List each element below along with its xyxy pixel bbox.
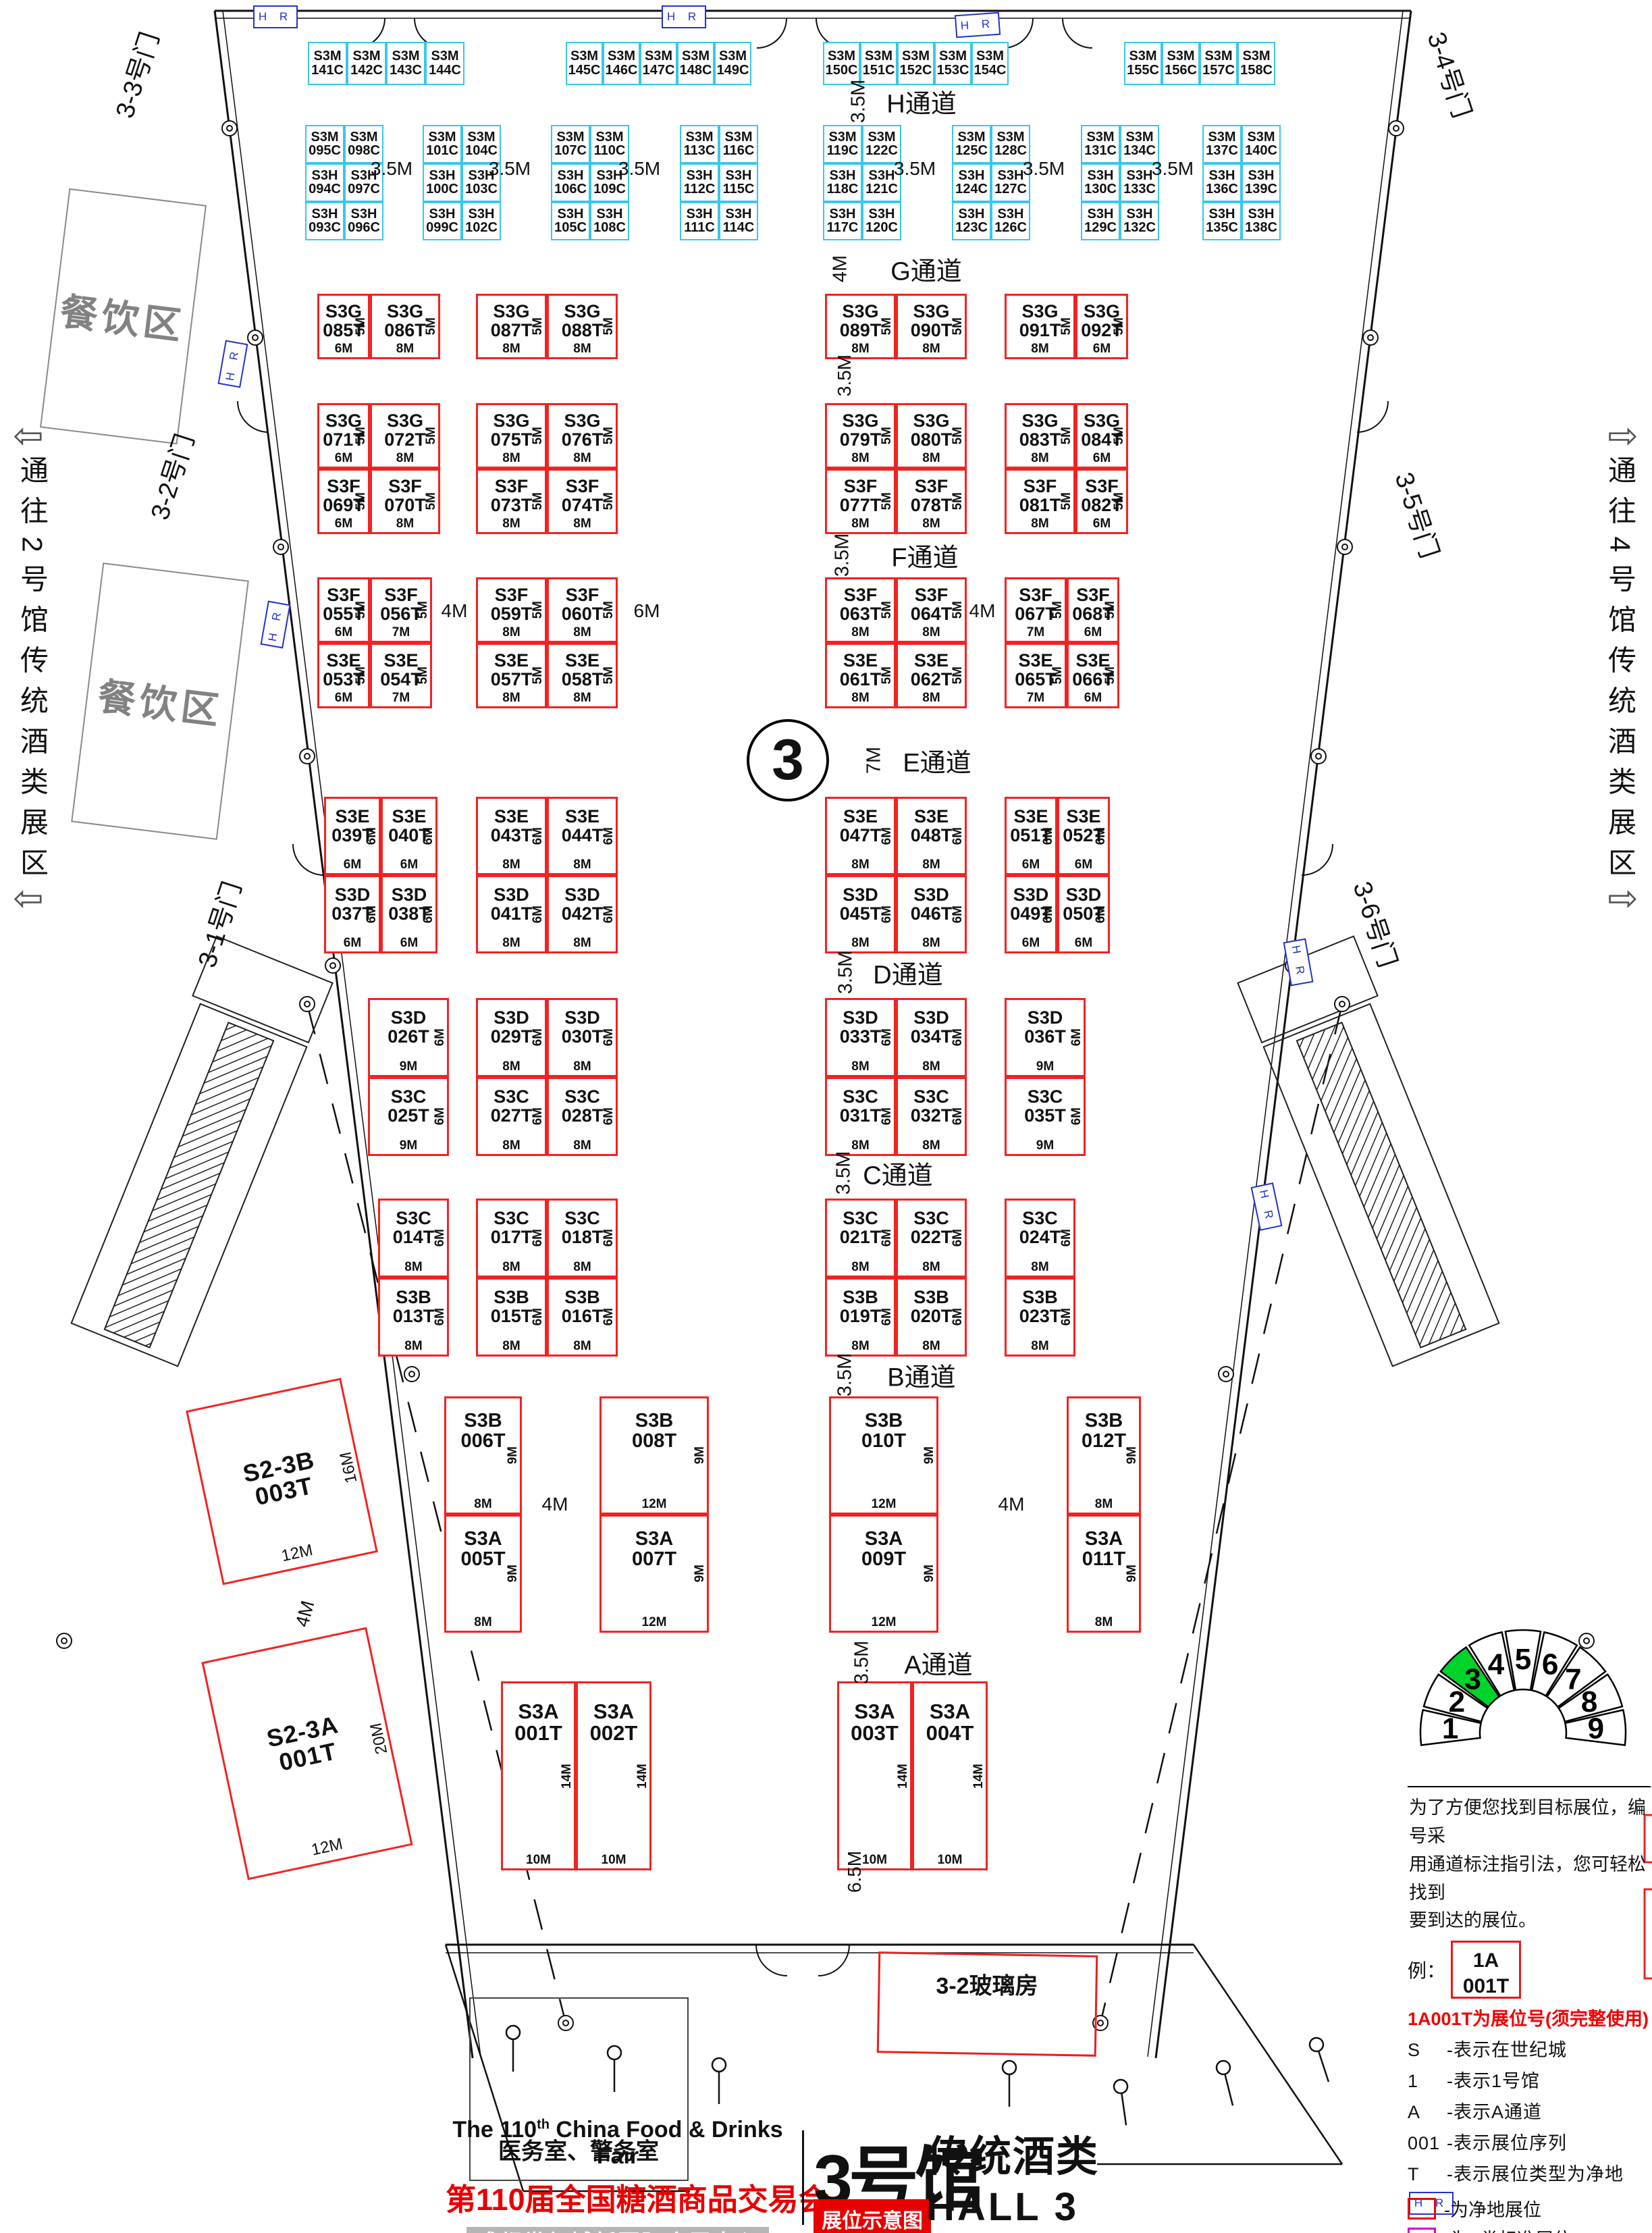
booth-S3C-022T: S3C022T6M8M	[896, 1199, 967, 1278]
booth-S3H-108C: S3H108C	[590, 202, 629, 240]
booth-bottom-dim: 8M	[478, 342, 545, 357]
booth-bottom-dim: 7M	[1007, 625, 1065, 640]
booth-S3E-052T: S3E052T6M6M	[1057, 797, 1110, 875]
booth-S3B-008T: S3B008T9M12M	[599, 1396, 709, 1515]
booth-id: S3M145C	[567, 49, 602, 78]
fair-title-cn: 第110届全国糖酒商品交易会	[446, 2175, 790, 2219]
booth-id: S3M153C	[936, 49, 970, 78]
booth-S3M-142C: S3M142C	[347, 42, 386, 85]
booth-S3M-155C: S3M155C	[1124, 42, 1162, 85]
booth-bottom-dim: 8M	[827, 517, 894, 531]
booth-id: S3H096C	[346, 207, 382, 236]
booth-S3G-087T: S3G087T5M8M	[476, 294, 547, 359]
aisle-width-F通道: 3.5M	[832, 533, 854, 577]
booth-id: S3M154C	[973, 49, 1007, 78]
booth-S3H-094C: S3H094C	[305, 163, 344, 202]
booth-S3B-019T: S3B019T6M8M	[825, 1278, 896, 1357]
booth-id: S3B010T	[831, 1411, 936, 1451]
booth-S3D-026T: S3D026T6M9M	[368, 998, 449, 1077]
booth-bottom-dim: 8M	[898, 342, 965, 357]
right-stair-corridor	[1237, 937, 1508, 1367]
corridor-label-10: 通往2号馆传统酒类展区	[12, 455, 53, 888]
booth-S3D-034T: S3D034T6M8M	[896, 998, 967, 1077]
booth-id: S3H130C	[1082, 169, 1119, 197]
booth-S3G-090T: S3G090T5M8M	[896, 294, 967, 359]
legend-code-A: A-表示A通道	[1408, 2097, 1651, 2124]
booth-S3H-106C: S3H106C	[551, 163, 590, 202]
aisle-width-E通道: 7M	[863, 747, 886, 774]
booth-bottom-dim: 8M	[372, 342, 438, 357]
booth-S3H-132C: S3H132C	[1120, 202, 1159, 240]
booth-S3F-074T: S3F074T5M8M	[547, 469, 618, 534]
booth-S3M-107C: S3M107C	[551, 125, 590, 163]
booth-S3H-118C: S3H118C	[823, 163, 862, 202]
booth-bottom-dim: 8M	[549, 858, 616, 872]
title-divider	[802, 2130, 804, 2225]
booth-bottom-dim: 6M	[1069, 691, 1117, 706]
booth-S3A-003T: S3A003T14M10M	[837, 1681, 912, 1870]
booth-S3E-040T: S3E040T6M6M	[381, 797, 437, 875]
booth-bottom-dim: 8M	[380, 1260, 447, 1275]
booth-S3C-021T: S3C021T6M8M	[825, 1199, 896, 1278]
booth-S3H-099C: S3H099C	[423, 202, 462, 240]
booth-id: S3H102C	[463, 207, 500, 236]
fan-hall-number-7: 7	[1565, 1663, 1581, 1696]
booth-bottom-dim: 8M	[549, 1059, 616, 1074]
aisle-label-B通道: B通道	[887, 1357, 955, 1394]
booth-id: S3M131C	[1082, 130, 1119, 159]
booth-bottom-dim: 8M	[478, 936, 545, 951]
booth-S3G-083T: S3G083T5M8M	[1005, 403, 1075, 469]
booth-id: S3M158C	[1239, 49, 1274, 78]
booth-S3A-001T: S3A001T14M10M	[501, 1681, 576, 1870]
hall-number-circle: 3	[747, 719, 829, 802]
booth-S3E-039T: S3E039T6M6M	[324, 797, 381, 875]
booth-S3M-146C: S3M146C	[603, 42, 640, 85]
booth-S3M-152C: S3M152C	[897, 42, 934, 85]
booth-bottom-dim: 8M	[898, 517, 965, 531]
booth-S3D-037T: S3D037T6M6M	[324, 875, 381, 953]
legend-code-T: T-表示展位类型为净地	[1408, 2159, 1651, 2186]
fair-title-en: The 110th China Food & Drinks Fair	[446, 2117, 790, 2170]
booth-bottom-dim: 8M	[478, 625, 545, 640]
booth-S3H-112C: S3H112C	[680, 163, 719, 202]
booth-id: S3H112C	[681, 169, 718, 197]
booth-bottom-dim: 8M	[446, 1497, 520, 1512]
booth-S3G-072T: S3G072T5M8M	[370, 403, 440, 469]
corridor-label-11: 通往4号馆传统酒类展区	[1600, 455, 1641, 888]
booth-id: S3M107C	[552, 130, 589, 159]
aisle-label-E通道: E通道	[903, 742, 971, 779]
booth-bottom-dim: 8M	[1007, 1339, 1073, 1354]
booth-side-dim: 14M	[635, 1683, 650, 1868]
booth-id: S3H138C	[1243, 207, 1279, 236]
booth-bottom-dim: 8M	[898, 858, 965, 872]
booth-id: S3M098C	[346, 130, 382, 159]
booth-side-dim: 9M	[922, 1517, 937, 1631]
booth-S3G-079T: S3G079T5M8M	[825, 403, 896, 469]
hall-type-cn: 传统酒类	[926, 2122, 1099, 2183]
fire-hydrant-hr-box-1: H R	[662, 5, 706, 28]
booth-S3C-028T: S3C028T6M8M	[547, 1077, 618, 1156]
booth-S3E-066T: S3E066T5M6M	[1067, 643, 1119, 708]
booth-bottom-dim: 12M	[831, 1497, 936, 1512]
booth-id: S3H117C	[824, 207, 861, 236]
booth-S3M-141C: S3M141C	[308, 42, 347, 85]
booth-side-dim: 9M	[693, 1398, 708, 1513]
booth-id: S3M151C	[861, 49, 896, 78]
venue-name: 成都世纪城新国际会展中心	[467, 2227, 769, 2233]
fair-titles: The 110th China Food & Drinks Fair 第110届…	[446, 2117, 790, 2233]
booth-id: S3B008T	[602, 1411, 707, 1451]
booth-id: S3M152C	[899, 49, 933, 78]
booth-S3E-047T: S3E047T6M8M	[825, 797, 896, 875]
booth-S3B-020T: S3B020T6M8M	[896, 1278, 967, 1357]
booth-bottom-dim: 9M	[1007, 1138, 1084, 1153]
booth-side-dim: 9M	[693, 1517, 708, 1631]
booth-S3F-064T: S3F064T5M8M	[896, 577, 967, 643]
booth-side-dim: 14M	[896, 1683, 911, 1868]
arrow-label-12: ⇦	[13, 415, 43, 457]
booth-side-dim: 14M	[971, 1683, 986, 1868]
booth-id: S3M150C	[824, 49, 859, 78]
booth-bottom-dim: 9M	[1007, 1059, 1084, 1074]
booth-S3D-030T: S3D030T6M8M	[547, 998, 618, 1077]
booth-id: S3H111C	[681, 207, 718, 236]
aisle-width-D通道: 3.5M	[835, 951, 857, 994]
booth-S3M-154C: S3M154C	[971, 42, 1009, 85]
booth-bottom-dim: 8M	[898, 691, 965, 706]
booth-side-dim: 9M	[506, 1517, 521, 1631]
legend-code-lines: S-表示在世纪城1-表示1号馆A-表示A通道001-表示展位序列T-表示展位类型…	[1408, 2035, 1651, 2186]
booth-S3M-131C: S3M131C	[1081, 125, 1120, 163]
booth-S3B-015T: S3B015T6M8M	[476, 1278, 547, 1357]
booth-S3H-100C: S3H100C	[423, 163, 462, 202]
booth-id: S3M113C	[681, 130, 718, 159]
booth-S3M-145C: S3M145C	[566, 42, 603, 85]
booth-S3B-012T: S3B012T9M8M	[1067, 1396, 1141, 1515]
legend-swatch-color	[1408, 2198, 1436, 2219]
booth-bottom-dim: 6M	[1077, 451, 1126, 466]
legend-example-note: 1A001T为展位号(须完整使用)	[1408, 2004, 1651, 2030]
dim-label-4M-10: 4M	[542, 1494, 568, 1515]
booth-bottom-dim: 8M	[549, 1260, 616, 1275]
booth-id: S3A009T	[831, 1529, 936, 1569]
booth-S3M-137C: S3M137C	[1202, 125, 1242, 163]
booth-id: S3H108C	[591, 207, 628, 236]
booth-S3A-004T: S3A004T14M10M	[912, 1681, 988, 1870]
booth-bottom-dim: 8M	[1069, 1615, 1139, 1630]
room-label-9: 3-2玻璃房	[936, 1968, 1038, 2001]
booth-S3E-044T: S3E044T6M8M	[547, 797, 618, 875]
booth-S3M-156C: S3M156C	[1162, 42, 1200, 85]
booth-id: S3M146C	[604, 49, 639, 78]
map-tag: 展位示意图	[814, 2199, 931, 2233]
booth-S3H-123C: S3H123C	[952, 202, 991, 240]
fan-hall-number-5: 5	[1515, 1643, 1531, 1676]
booth-id: S3H136C	[1204, 169, 1240, 197]
booth-id: S3H123C	[953, 207, 990, 236]
legend-code-001: 001-表示展位序列	[1408, 2128, 1651, 2155]
booth-bottom-dim: 8M	[827, 691, 894, 706]
booth-id: S3M144C	[427, 49, 463, 78]
booth-bottom-dim: 8M	[478, 517, 545, 531]
booth-bottom-dim: 10M	[578, 1853, 649, 1868]
booth-S3A-005T: S3A005T9M8M	[444, 1515, 522, 1633]
booth-bottom-dim: 8M	[549, 1138, 616, 1153]
booth-bottom-dim: 8M	[827, 936, 894, 951]
booth-id: S3H115C	[720, 169, 757, 197]
booth-S3B-013T: S3B013T6M8M	[378, 1278, 449, 1357]
booth-bottom-dim: 8M	[549, 936, 616, 951]
booth-id: S3M141C	[309, 49, 346, 78]
booth-S3G-089T: S3G089T5M8M	[825, 294, 896, 359]
booth-bottom-dim: 8M	[1007, 342, 1073, 357]
booth-S3B-010T: S3B010T9M12M	[829, 1396, 938, 1515]
booth-S3C-025T: S3C025T6M9M	[368, 1077, 449, 1156]
booth-S3M-153C: S3M153C	[934, 42, 971, 85]
booth-S3H-117C: S3H117C	[823, 202, 862, 240]
booth-bottom-dim: 8M	[898, 936, 965, 951]
booth-S3M-101C: S3M101C	[423, 125, 462, 163]
dim-label-3.5M-5: 3.5M	[1152, 158, 1194, 180]
booth-bottom-dim: 8M	[1007, 451, 1073, 466]
booth-id: S3M104C	[463, 130, 500, 159]
booth-S3H-136C: S3H136C	[1202, 163, 1242, 202]
booth-bottom-dim: 8M	[549, 625, 616, 640]
booth-id: S3M119C	[824, 130, 861, 159]
booth-id: S3H106C	[552, 169, 589, 197]
booth-S3G-080T: S3G080T5M8M	[896, 403, 967, 469]
booth-bottom-dim: 6M	[1059, 936, 1108, 951]
dim-label-4M-11: 4M	[998, 1494, 1025, 1515]
booth-S3A-009T: S3A009T9M12M	[829, 1515, 938, 1633]
booth-bottom-dim: 6M	[319, 691, 368, 706]
booth-bottom-dim: 7M	[1007, 691, 1065, 706]
fan-hall-number-6: 6	[1542, 1648, 1558, 1681]
booth-bottom-dim: 8M	[898, 625, 965, 640]
left-stair-corridor	[62, 937, 333, 1367]
fire-hydrant-hr-box-2: H R	[955, 12, 1001, 38]
booth-S3E-053T: S3E053T5M6M	[317, 643, 370, 708]
booth-bottom-dim: 7M	[372, 625, 430, 640]
booth-S3F-077T: S3F077T5M8M	[825, 469, 896, 534]
booth-id: S3H093C	[307, 207, 343, 236]
dim-label-3.5M-1: 3.5M	[489, 158, 531, 180]
booth-bottom-dim: 12M	[602, 1497, 707, 1512]
booth-id: S3H100C	[424, 169, 460, 197]
booth-S3M-144C: S3M144C	[425, 42, 464, 85]
booth-bottom-dim: 8M	[898, 1059, 965, 1074]
booth-side-dim: 9M	[506, 1398, 521, 1513]
booth-S3C-027T: S3C027T6M8M	[476, 1077, 547, 1156]
booth-id: S3H094C	[307, 169, 343, 197]
booth-S3F-068T: S3F068T5M6M	[1067, 577, 1119, 643]
booth-S3A-002T: S3A002T14M10M	[576, 1681, 651, 1870]
dim-label-3.5M-3: 3.5M	[894, 158, 936, 180]
booth-bottom-dim: 6M	[319, 342, 368, 357]
booth-S3H-138C: S3H138C	[1242, 202, 1281, 240]
hall-overview-fan: 123456789	[1411, 1621, 1641, 1776]
booth-id: S3H124C	[953, 169, 990, 197]
booth-bottom-dim: 6M	[1007, 858, 1055, 872]
booth-bottom-dim: 8M	[478, 858, 545, 872]
booth-bottom-dim: 8M	[1069, 1497, 1139, 1512]
booth-bottom-dim: 8M	[1007, 1260, 1073, 1275]
booth-side-dim: 14M	[560, 1683, 575, 1868]
aisle-width-A通道: 3.5M	[851, 1641, 874, 1684]
booth-S3M-119C: S3M119C	[823, 125, 862, 163]
booth-id: S3M110C	[591, 130, 628, 159]
booth-S3M-158C: S3M158C	[1237, 42, 1275, 85]
dim-label-3.5M-0: 3.5M	[371, 158, 412, 180]
legend-code-S: S-表示在世纪城	[1408, 2035, 1651, 2061]
booth-bottom-dim: 8M	[827, 1339, 894, 1354]
booth-id: S3H118C	[824, 169, 861, 197]
booth-S3H-124C: S3H124C	[952, 163, 991, 202]
booth-S3H-111C: S3H111C	[680, 202, 719, 240]
booth-bottom-dim: 8M	[827, 858, 894, 872]
booth-bottom-dim: 12M	[831, 1615, 936, 1630]
aisle-width-H通道: 3.5M	[848, 80, 870, 123]
booth-S3G-092T: S3G092T5M6M	[1075, 294, 1128, 359]
booth-id: S3M140C	[1243, 130, 1279, 159]
booth-S3D-050T: S3D050T6M6M	[1057, 875, 1110, 953]
hall-name-en: HALL 3	[926, 2184, 1099, 2230]
booth-id: S3M156C	[1163, 49, 1198, 78]
booth-S3E-057T: S3E057T5M8M	[476, 643, 547, 708]
legend-example-booth-box: 1A 001T	[1451, 1941, 1521, 1999]
legend-intro: 为了方便您找到目标展位，编号采用通道标注指引法，您可轻松找到要到达的展位。	[1409, 1794, 1651, 1935]
booth-S3G-075T: S3G075T5M8M	[476, 403, 547, 469]
booth-S3E-061T: S3E061T5M8M	[825, 643, 896, 708]
booth-S3F-070T: S3F070T5M8M	[370, 469, 440, 534]
booth-S3C-014T: S3C014T6M8M	[378, 1199, 449, 1278]
booth-S3H-093C: S3H093C	[305, 202, 344, 240]
booth-bottom-dim: 8M	[372, 451, 438, 466]
booth-bottom-dim: 6M	[319, 517, 368, 531]
booth-S3H-105C: S3H105C	[551, 202, 590, 240]
booth-S3D-041T: S3D041T6M8M	[476, 875, 547, 953]
booth-bottom-dim: 8M	[446, 1615, 520, 1630]
booth-bottom-dim: 8M	[372, 517, 438, 531]
dim-label-4M-9: 4M	[969, 600, 996, 622]
aisle-label-F通道: F通道	[891, 537, 958, 574]
booth-bottom-dim: 8M	[827, 1059, 894, 1074]
booth-S3H-102C: S3H102C	[462, 202, 501, 240]
legend-swatch-color	[1408, 2228, 1436, 2233]
booth-side-dim: 9M	[1125, 1517, 1140, 1631]
booth-S3D-033T: S3D033T6M8M	[825, 998, 896, 1077]
aisle-width-C通道: 3.5M	[833, 1151, 855, 1194]
booth-S3E-065T: S3E065T5M7M	[1005, 643, 1067, 708]
fan-hall-number-2: 2	[1449, 1685, 1465, 1718]
booth-S3F-081T: S3F081T5M8M	[1005, 469, 1075, 534]
booth-S3H-135C: S3H135C	[1202, 202, 1242, 240]
booth-S3M-116C: S3M116C	[719, 125, 758, 163]
booth-S3B-016T: S3B016T6M8M	[547, 1278, 618, 1357]
booth-bottom-dim: 6M	[1077, 517, 1126, 531]
booth-bottom-dim: 6M	[1077, 342, 1126, 357]
booth-bottom-dim: 8M	[898, 1260, 965, 1275]
booth-S3E-051T: S3E051T6M6M	[1005, 797, 1057, 875]
booth-S3M-113C: S3M113C	[680, 125, 719, 163]
booth-bottom-dim: 9M	[370, 1138, 447, 1153]
dim-label-6.5M-13: 6.5M	[844, 1851, 865, 1893]
booth-S3F-055T: S3F055T5M6M	[317, 577, 370, 643]
booth-S3H-120C: S3H120C	[862, 202, 901, 240]
booth-bottom-dim: 8M	[478, 1138, 545, 1153]
hall-number: 3	[772, 727, 804, 793]
booth-S3M-140C: S3M140C	[1242, 125, 1281, 163]
arrow-label-13: ⇦	[13, 877, 43, 920]
booth-id: S3M128C	[992, 130, 1029, 159]
booth-id: S3H139C	[1243, 169, 1279, 197]
legend-swatches: -为净地展位-为A类标准展位-为B类标准展位-为C类标准展位-为D类标准展位	[1408, 2195, 1651, 2233]
booth-bottom-dim: 8M	[827, 451, 894, 466]
booth-id: S3H129C	[1082, 207, 1119, 236]
booth-S3H-126C: S3H126C	[991, 202, 1030, 240]
booth-S3D-045T: S3D045T6M8M	[825, 875, 896, 953]
booth-S3A-011T: S3A011T9M8M	[1067, 1515, 1141, 1633]
legend-example-label: 例：	[1408, 1956, 1445, 1983]
booth-id: S3M134C	[1121, 130, 1158, 159]
booth-S3H-129C: S3H129C	[1081, 202, 1120, 240]
booth-S3G-071T: S3G071T5M6M	[317, 403, 370, 469]
fire-hydrant-hr-box-0: H R	[253, 5, 298, 28]
booth-bottom-dim: 8M	[478, 1059, 545, 1074]
booth-S3C-018T: S3C018T6M8M	[547, 1199, 618, 1278]
booth-side-dim: 9M	[1125, 1398, 1140, 1513]
booth-id: S3H126C	[992, 207, 1029, 236]
booth-S3G-076T: S3G076T5M8M	[547, 403, 618, 469]
fan-hall-number-9: 9	[1588, 1712, 1604, 1745]
booth-S3M-147C: S3M147C	[640, 42, 677, 85]
booth-S3E-048T: S3E048T6M8M	[896, 797, 967, 875]
booth-S3G-085T: S3G085T5M6M	[317, 294, 370, 359]
booth-bottom-dim: 8M	[827, 625, 894, 640]
booth-bottom-dim: 7M	[372, 691, 430, 706]
booth-S3F-059T: S3F059T5M8M	[476, 577, 547, 643]
booth-S3C-032T: S3C032T6M8M	[896, 1077, 967, 1156]
booth-bottom-dim: 6M	[1059, 858, 1108, 872]
booth-S3H-139C: S3H139C	[1242, 163, 1281, 202]
booth-id: S3M101C	[424, 130, 460, 159]
booth-S3D-042T: S3D042T6M8M	[547, 875, 618, 953]
booth-id: S3M095C	[307, 130, 343, 159]
booth-S3H-115C: S3H115C	[719, 163, 758, 202]
booth-S3G-088T: S3G088T5M8M	[547, 294, 618, 359]
booth-side-dim: 9M	[922, 1398, 937, 1513]
booth-id: S3M149C	[716, 49, 750, 78]
booth-bottom-dim: 8M	[380, 1339, 447, 1354]
booth-S3G-084T: S3G084T5M6M	[1075, 403, 1128, 469]
booth-S3H-096C: S3H096C	[344, 202, 383, 240]
booth-S3M-095C: S3M095C	[305, 125, 344, 163]
booth-bottom-dim: 8M	[478, 691, 545, 706]
booth-S3E-054T: S3E054T5M7M	[370, 643, 432, 708]
booth-bottom-dim: 9M	[370, 1059, 447, 1074]
arrow-label-14: ⇨	[1607, 415, 1638, 457]
booth-bottom-dim: 8M	[478, 1339, 545, 1354]
booth-S3M-150C: S3M150C	[823, 42, 860, 85]
dim-label-3.5M-2: 3.5M	[618, 158, 660, 180]
booth-S3D-029T: S3D029T6M8M	[476, 998, 547, 1077]
booth-S3F-067T: S3F067T5M7M	[1005, 577, 1067, 643]
title-block: The 110th China Food & Drinks Fair 第110届…	[446, 2117, 1121, 2233]
booth-S3E-043T: S3E043T6M8M	[476, 797, 547, 875]
aisle-label-G通道: G通道	[890, 251, 962, 288]
